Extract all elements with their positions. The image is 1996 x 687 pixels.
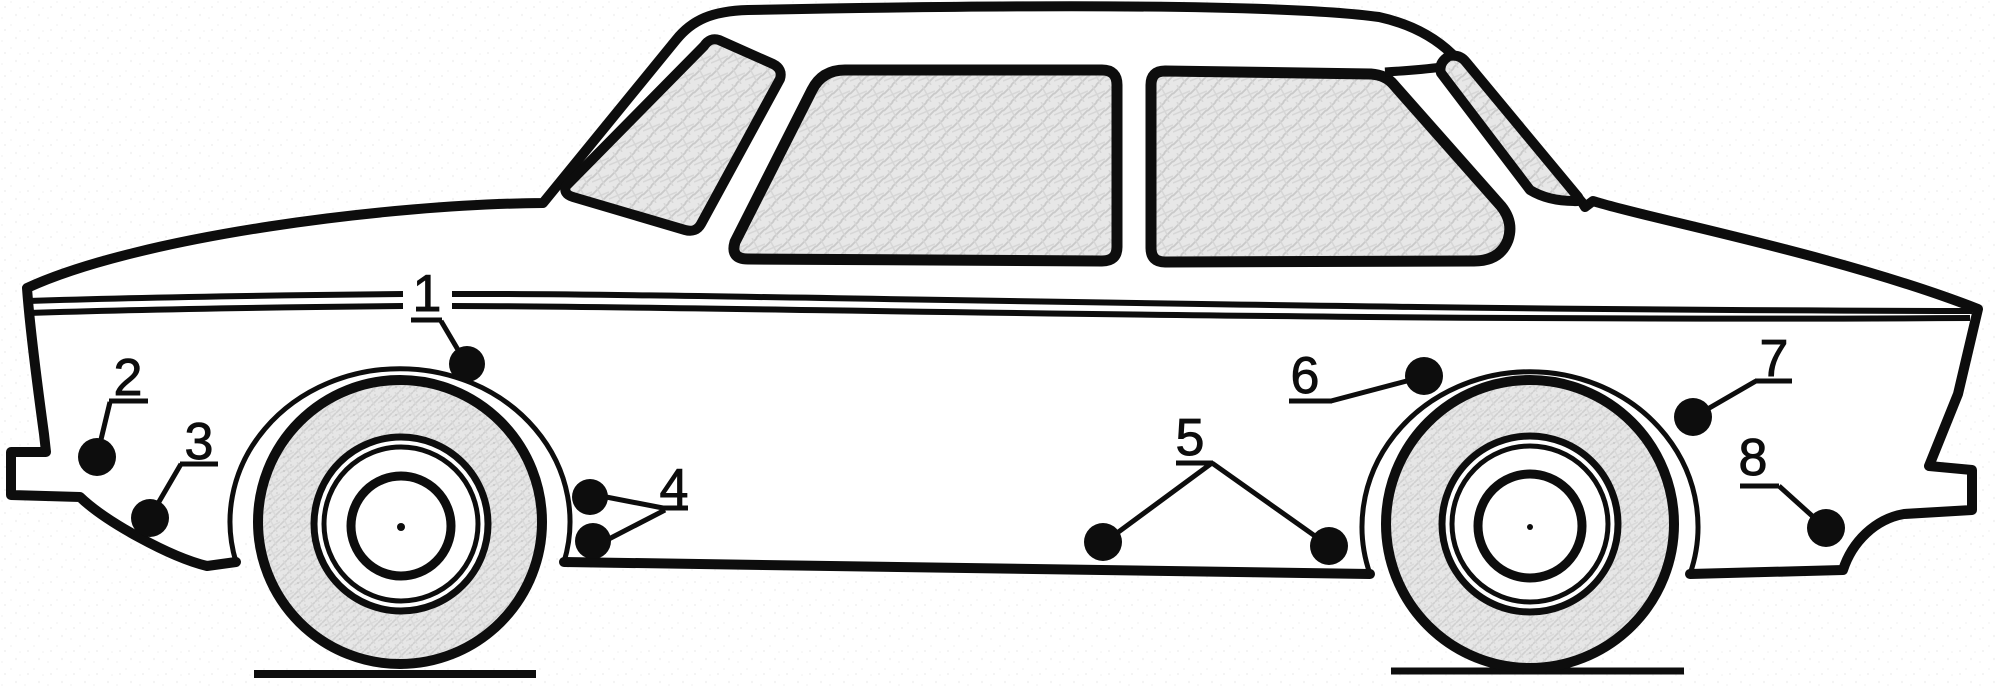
- svg-text:1: 1: [413, 265, 442, 323]
- svg-text:6: 6: [1291, 347, 1320, 405]
- svg-text:2: 2: [114, 349, 143, 407]
- svg-text:8: 8: [1739, 429, 1768, 487]
- svg-text:5: 5: [1176, 409, 1205, 467]
